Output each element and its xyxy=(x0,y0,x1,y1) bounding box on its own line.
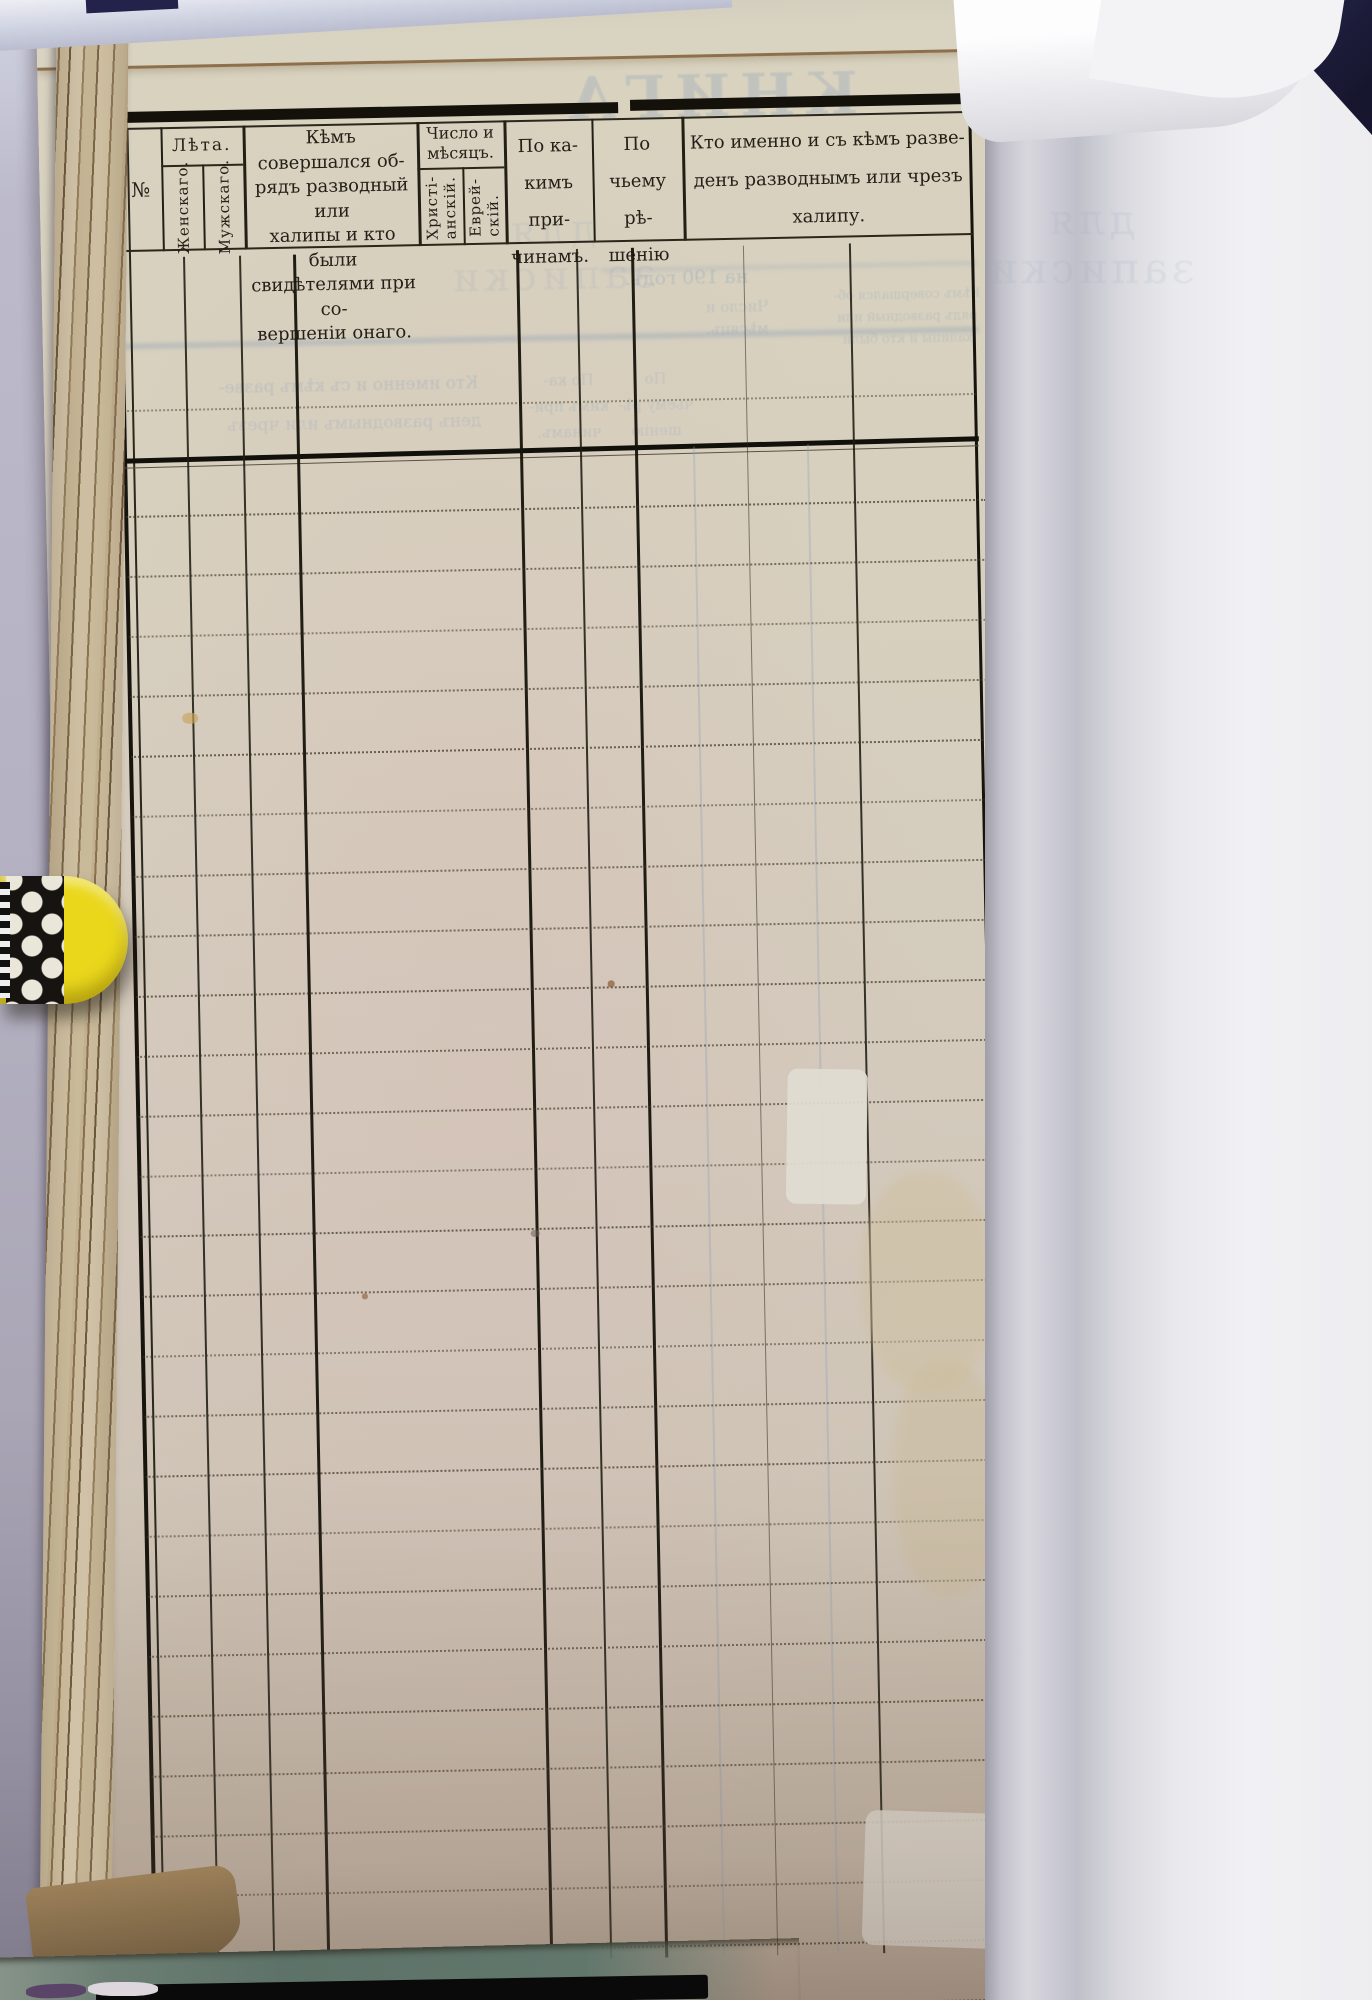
repair-patch xyxy=(786,1069,868,1205)
showthrough-header-reasons: По ка- кимъ при- чинамъ. xyxy=(523,366,615,446)
register-sheet: КНИГА для записки на 190 годъ. Кто именн… xyxy=(35,0,1026,2000)
header-date-christian-label: Христі- анскій. xyxy=(422,175,459,240)
header-date-christian: Христі- анскій. xyxy=(417,169,464,246)
page-clip xyxy=(0,876,128,1004)
header-date-jewish-label: Еврей- скій. xyxy=(465,177,502,237)
header-who: Кто именно и съ кѣмъ разве- денъ разводн… xyxy=(685,119,970,239)
header-years-male: Мужскаго. xyxy=(202,164,245,251)
stain xyxy=(182,713,198,724)
header-officiant: Кѣмъ совершался об- рядъ разводный или х… xyxy=(246,124,418,348)
showthrough-header-officiant: Кѣмъ совершался об- рядъ разводный или х… xyxy=(832,283,983,352)
showthrough-header-who-line1: Кто именно и съ кѣмъ разве- xyxy=(183,372,513,399)
header-years-male-label: Мужскаго. xyxy=(214,159,234,255)
stain xyxy=(362,1293,368,1299)
showthrough-facing-subtitle: для записки xyxy=(960,195,1220,293)
bottom-paper-bit xyxy=(88,1982,158,1996)
header-date-jewish: Еврей- скій. xyxy=(462,168,506,245)
stain xyxy=(531,1230,540,1237)
facing-page xyxy=(985,0,1372,2000)
header-date-group: Число и мѣсяцъ. xyxy=(416,122,504,164)
page-clip-teeth xyxy=(0,882,10,997)
header-decision: По чьему рѣ- шенію xyxy=(591,125,684,275)
stain xyxy=(608,980,615,987)
register-book-photo: КНИГА для записки на 190 годъ. Кто именн… xyxy=(0,0,1372,2000)
stain xyxy=(860,1171,996,1394)
page-clip-polkadot-band xyxy=(6,876,64,1004)
header-years-female-label: Женскаго. xyxy=(173,161,193,254)
header-years-female: Женскаго. xyxy=(161,164,204,251)
showthrough-header-decision: По чьему рѣ- шенію xyxy=(615,365,697,445)
